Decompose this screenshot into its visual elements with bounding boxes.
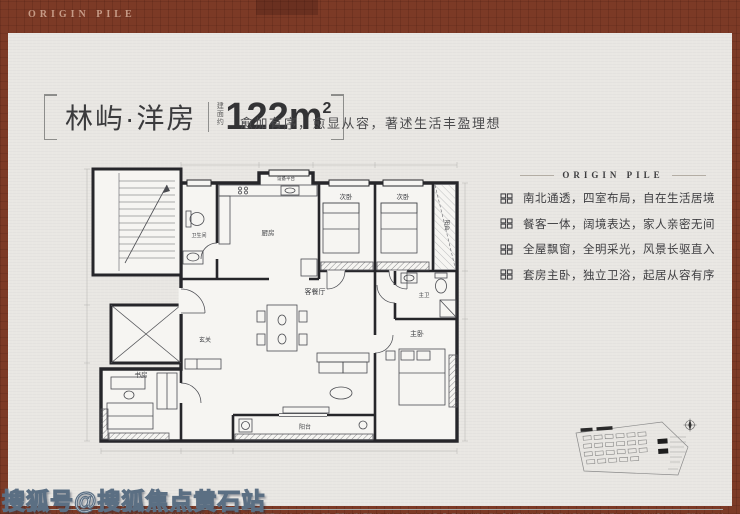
room-label-master-bath: 主卫 xyxy=(418,291,430,299)
features-heading-text: ORIGIN PILE xyxy=(562,170,663,180)
siteplan-drawing xyxy=(570,417,710,483)
area-unit-label: 建面约 xyxy=(216,102,223,132)
heading-line-right xyxy=(672,175,706,176)
site-buildings xyxy=(580,422,668,464)
features-list: 南北通透，四室布局，自在生活居境 餐客一体，阔境表达，家人亲密无间 全屋飘窗，全… xyxy=(500,191,726,282)
features-panel: ORIGIN PILE 南北通透，四室布局，自在生活居境 餐客一体，阔境表达，家… xyxy=(500,170,726,293)
room-label-balcony-top: 阳台 xyxy=(443,219,451,231)
room-label-foyer: 玄关 xyxy=(199,336,211,344)
compass-icon xyxy=(684,419,697,432)
page-title: 林屿·洋房 xyxy=(57,97,206,137)
features-heading: ORIGIN PILE xyxy=(500,170,726,180)
room-label-bedroom-b: 次卧 xyxy=(397,192,411,201)
site-legend-lines xyxy=(668,437,686,469)
tagline: 愈加有序，愈显从容，著述生活丰盈理想 xyxy=(240,113,501,132)
room-label-kitchen: 厨房 xyxy=(262,228,275,237)
room-label-master: 主卧 xyxy=(410,329,424,338)
corner-bracket-left-icon xyxy=(44,94,57,140)
seal-grid-icon xyxy=(500,244,513,255)
title-divider xyxy=(208,102,209,132)
feature-text: 餐客一体，阔境表达，家人亲密无间 xyxy=(523,216,715,232)
siteplan xyxy=(570,417,710,483)
feature-item: 南北通透，四室布局，自在生活居境 xyxy=(500,191,726,205)
seal-grid-icon xyxy=(500,193,513,204)
feature-item: 餐客一体，阔境表达，家人亲密无间 xyxy=(500,217,726,231)
room-label-bath: 卫生间 xyxy=(191,232,206,239)
feature-item: 全屋飘窗，全明采光，风景长驱直入 xyxy=(500,242,726,256)
feature-text: 套房主卧，独立卫浴，起居从容有序 xyxy=(523,267,715,283)
seal-grid-icon xyxy=(500,218,513,229)
entry-opening xyxy=(179,288,184,314)
stair-core xyxy=(93,169,181,275)
feature-text: 南北通透，四室布局，自在生活居境 xyxy=(523,190,715,206)
brand-logo: ORIGIN PILE xyxy=(28,9,136,20)
site-boundary xyxy=(576,422,688,475)
room-label-equipment: 设备平台 xyxy=(277,175,295,182)
floorplan: 程橙 xyxy=(83,159,473,465)
highlighted-building xyxy=(658,448,668,454)
room-label-bedroom-a: 次卧 xyxy=(340,192,354,201)
band-accent-block xyxy=(256,0,318,15)
heading-line-left xyxy=(520,175,554,176)
room-label-balcony-bottom: 阳台 xyxy=(299,423,311,431)
floorplan-drawing: 程橙 xyxy=(83,159,473,465)
sohu-watermark: 搜狐号@搜狐焦点黄石站 xyxy=(2,482,265,514)
highlighted-building xyxy=(657,438,667,444)
feature-item: 套房主卧，独立卫浴，起居从容有序 xyxy=(500,268,726,282)
room-label-living: 客餐厅 xyxy=(305,287,326,296)
seal-grid-icon xyxy=(500,269,513,280)
elevator-core xyxy=(111,305,181,363)
poster-content: 林屿·洋房 建面约 122m2 愈加有序，愈显从容，著述生活丰盈理想 程橙 xyxy=(8,33,732,506)
room-label-study: 书房 xyxy=(135,370,148,379)
feature-text: 全屋飘窗，全明采光，风景长驱直入 xyxy=(523,241,715,257)
poster-page: ORIGIN PILE 林屿·洋房 建面约 122m2 愈加有序，愈显从容，著述… xyxy=(0,0,740,514)
